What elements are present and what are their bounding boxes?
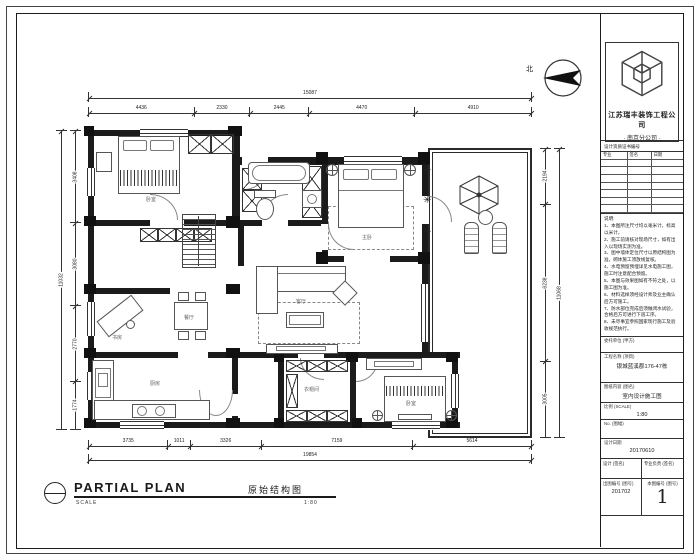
dining-chair	[178, 331, 189, 340]
sheet-number-cell: 本图编号 (图号) 1	[642, 479, 683, 515]
dim-bottom-segments: 37351011332671595614	[88, 440, 532, 450]
room-label: 衣帽间	[304, 388, 319, 393]
note-line: 3、图中墙体定位尺寸以原结构图为准，砌体施工须放线复核。	[604, 250, 680, 264]
sheet-number: 1	[644, 487, 681, 508]
nightstand-lamp	[372, 410, 383, 421]
parasol-symbol	[456, 174, 502, 216]
room-label: 主卧	[362, 236, 372, 241]
north-arrow-icon	[536, 56, 586, 100]
sign-strip: 设计资质证书编号	[601, 140, 683, 152]
pier	[418, 252, 430, 264]
sign-header: 日期	[652, 152, 683, 160]
sign-header: 专业	[601, 152, 628, 160]
drawing-sheet: { "north_label": "北", "plan": { "dims_to…	[0, 0, 700, 560]
room-label: 厨房	[150, 382, 160, 387]
pier	[226, 348, 240, 358]
title-underline	[74, 496, 336, 498]
pier	[226, 216, 240, 228]
dim-right-total: 11068	[554, 148, 565, 438]
pillow	[150, 140, 174, 151]
plan-title-cn: 原始结构图	[248, 483, 303, 496]
dim-left-total: 11032	[56, 130, 67, 430]
dresser-inner	[374, 361, 414, 367]
closet-cabinet-symbol	[286, 410, 348, 422]
door-opening	[232, 394, 238, 416]
notes-block: 说明: 1、本图所注尺寸均以毫米计，标高以米计。 2、施工前请核对现场尺寸，如有…	[601, 213, 683, 336]
nightstand-lamp	[446, 410, 457, 421]
title-block: 江苏瑞丰装饰工程公司 · 南京分公司 · 设计资质证书编号 专业 签名 日期 说…	[600, 13, 682, 547]
room-label: 餐厅	[184, 316, 194, 321]
door-opening	[262, 219, 288, 227]
room-label: 卧室	[406, 402, 416, 407]
door-opening	[344, 255, 390, 263]
north-label: 北	[526, 64, 533, 74]
pier	[84, 348, 96, 358]
plant-symbol: ✳	[423, 166, 431, 176]
door-opening	[178, 351, 208, 359]
note-line: 1、本图所注尺寸均以毫米计，标高以米计。	[604, 223, 680, 237]
closet-cabinet-symbol	[286, 374, 298, 408]
sink-basin	[98, 373, 108, 387]
pier	[316, 152, 328, 164]
wall	[88, 288, 170, 294]
lounger-symbol	[464, 222, 479, 254]
nightstand-lamp	[404, 164, 416, 176]
closet-cabinet-symbol	[286, 360, 348, 372]
sign-header: 签名	[628, 152, 652, 160]
plant-symbol: ✳	[423, 196, 431, 206]
dining-chair	[195, 292, 206, 301]
company-logo-box: 江苏瑞丰装饰工程公司 · 南京分公司 ·	[605, 42, 679, 142]
dining-chair	[178, 292, 189, 301]
field-sheet-size: No. (图幅)	[601, 419, 683, 438]
window	[120, 421, 164, 429]
pier	[226, 418, 240, 428]
note-line: 7、防水部位完成后须做闭水试验，合格后方可进行下道工序。	[604, 306, 680, 320]
wall	[238, 226, 244, 266]
pier	[352, 418, 362, 428]
stairs-rail	[198, 216, 199, 266]
company-logo-icon	[615, 47, 669, 101]
pillow	[343, 169, 369, 180]
bathtub-inner	[252, 165, 306, 181]
room-label: 客厅	[296, 300, 306, 305]
note-line: 2、施工前请核对现场尺寸，如有出入以现场实测为准。	[604, 237, 680, 251]
pier	[84, 216, 96, 226]
burner	[155, 406, 165, 416]
drawing-number-cell: 出图编号 (图号) 201702	[601, 479, 642, 515]
dim-left-segments: 3408308027701774	[70, 130, 81, 430]
title-block-sheetrow: 出图编号 (图号) 201702 本图编号 (图号) 1	[601, 478, 683, 516]
lounger-symbol	[492, 222, 507, 254]
toilet-bowl	[256, 198, 274, 220]
wall	[88, 352, 238, 358]
dim-top-segments: 44362330244544704910	[88, 107, 532, 117]
coffee-table-inner	[289, 315, 321, 325]
note-line: 8、未尽事宜参照国家现行施工及验收规范执行。	[604, 319, 680, 333]
scale-value: 1:80	[304, 500, 318, 506]
pillow	[371, 169, 397, 180]
wardrobe-symbol	[188, 134, 234, 154]
field-content: 图纸内容 (图名) 室内设计施工图	[601, 382, 683, 402]
stairs-symbol	[182, 214, 216, 268]
bed-bench	[398, 414, 432, 420]
desk-chair	[126, 320, 135, 329]
field-project: 工程名称 (项目) 银城蓝溪郡176-47栋	[601, 352, 683, 382]
note-line: 5、本图与效果图如有不符之处，以施工图为准。	[604, 278, 680, 292]
plan-title: PARTIAL PLAN	[74, 480, 186, 495]
notes-title: 说明:	[604, 216, 680, 223]
bed-line	[339, 190, 403, 191]
sliding-door	[421, 284, 429, 342]
tv-symbol	[276, 346, 326, 351]
note-line: 4、水电预留预埋详见水电施工图，施工时注意配合预留。	[604, 264, 680, 278]
pier	[84, 126, 94, 136]
window	[451, 374, 459, 408]
scale-word: SCALE	[76, 500, 97, 506]
room-label: 书房	[112, 336, 122, 341]
pier	[274, 418, 284, 428]
door-opening	[150, 219, 184, 227]
pier	[226, 284, 240, 294]
field-client: 委托单位 (甲方)	[601, 336, 683, 352]
pier	[446, 352, 458, 362]
pillow	[123, 140, 147, 151]
nightstand-lamp	[326, 164, 338, 176]
window	[87, 168, 95, 196]
detail-bubble-line	[45, 493, 65, 494]
dining-chair	[195, 331, 206, 340]
pier	[316, 252, 328, 264]
basin-bowl	[307, 194, 317, 204]
chair-symbol	[96, 152, 112, 172]
plant-symbol: ✳	[423, 228, 431, 238]
wall	[278, 358, 284, 424]
burner	[137, 406, 147, 416]
dim-top-total: 15087	[88, 92, 532, 102]
title-block-signrow: 设计 (签名) 专业负责 (签名)	[601, 458, 683, 478]
field-date: 设计日期 20170610	[601, 438, 683, 458]
terrace-table	[478, 210, 493, 225]
bed-blanket	[386, 386, 444, 396]
bed-blanket	[120, 170, 178, 186]
note-line: 6、材料选样须经设计师及业主确认后方可施工。	[604, 292, 680, 306]
pier	[418, 152, 430, 164]
window	[392, 421, 440, 429]
dim-bottom-total: 19854	[88, 454, 532, 464]
company-name: 江苏瑞丰装饰工程公司	[606, 110, 678, 130]
field-scale: 比例 (SCALE) 1:80	[601, 402, 683, 419]
sofa-chaise	[256, 266, 278, 314]
signature-table: 专业 签名 日期	[601, 152, 683, 213]
pier	[84, 284, 96, 294]
dim-right-segments: 219462383005	[540, 148, 551, 438]
room-label: 卧室	[146, 198, 156, 203]
toilet-tank	[254, 190, 276, 198]
window	[87, 302, 95, 336]
